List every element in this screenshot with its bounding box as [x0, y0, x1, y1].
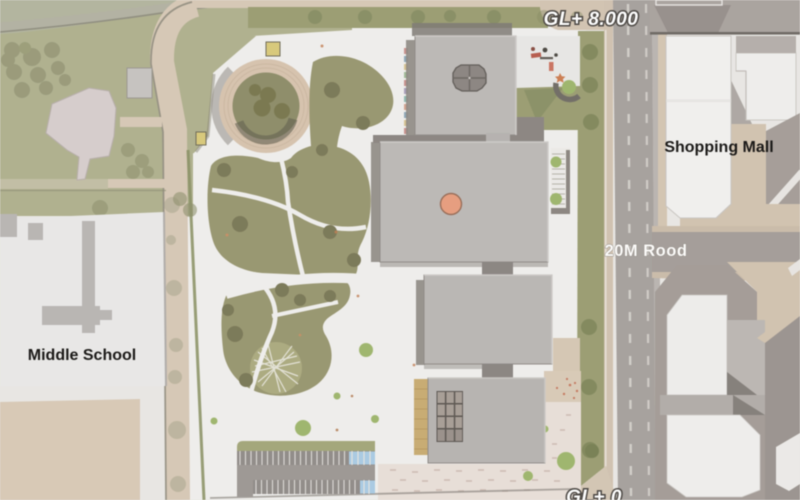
svg-text:GL+ 0: GL+ 0 — [566, 487, 622, 500]
svg-text:20M Rood: 20M Rood — [605, 242, 688, 260]
svg-text:Middle School: Middle School — [28, 347, 136, 364]
svg-text:Shopping Mall: Shopping Mall — [664, 139, 773, 156]
svg-text:GL+ 8.000: GL+ 8.000 — [544, 9, 639, 30]
